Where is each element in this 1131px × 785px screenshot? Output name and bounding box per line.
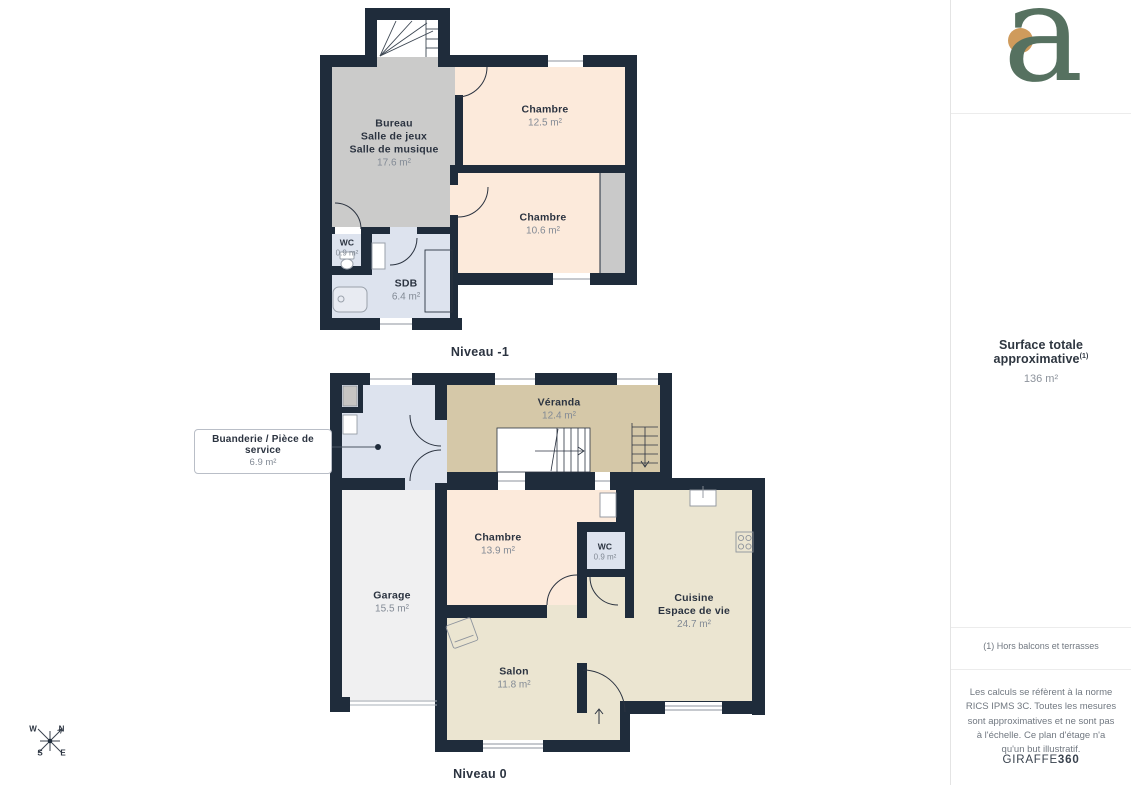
floorplan-page: { "colors": { "wall": "#1f2c3b", "room_p… xyxy=(0,0,1131,785)
callout-buanderie: Buanderie / Pièce de service 6.9 m² xyxy=(194,429,332,474)
surface-total-superscript: (1) xyxy=(1080,353,1089,360)
brand-wordmark: GIRAFFE360 xyxy=(951,754,1131,766)
sidebar-divider xyxy=(951,113,1131,114)
compass-south-label: S xyxy=(37,749,42,758)
stairs-icon-main xyxy=(497,428,590,472)
plan-level-0 xyxy=(326,373,765,752)
footnote: (1) Hors balcons et terrasses xyxy=(951,641,1131,651)
surface-total-text: Surface totale approximative xyxy=(994,338,1084,366)
surface-total-value: 136 m² xyxy=(951,373,1131,385)
level-title-0: Niveau 0 xyxy=(453,767,507,781)
brand-name: GIRAFFE xyxy=(1002,754,1057,766)
sidebar: a Surface totale approximative(1) 136 m²… xyxy=(950,0,1131,785)
plan-level-minus1 xyxy=(320,8,637,330)
brand-number: 360 xyxy=(1058,754,1080,766)
sidebar-divider xyxy=(951,627,1131,628)
surface-total-block: Surface totale approximative(1) 136 m² xyxy=(951,338,1131,385)
stairs-icon-minus1 xyxy=(377,20,438,57)
room-name: Buanderie / Pièce de service xyxy=(197,434,329,456)
compass-north-label: N xyxy=(59,725,65,734)
sidebar-divider xyxy=(951,669,1131,670)
surface-total-title: Surface totale approximative(1) xyxy=(951,338,1131,366)
disclaimer-text: Les calculs se réfèrent à la norme RICS … xyxy=(965,686,1117,757)
level-title-minus1: Niveau -1 xyxy=(451,345,509,359)
room-area: 6.9 m² xyxy=(197,457,329,468)
logo-letter: a xyxy=(1003,0,1084,101)
compass-east-label: E xyxy=(60,749,65,758)
brand-logo: a xyxy=(951,0,1131,113)
compass-west-label: W xyxy=(29,725,37,734)
